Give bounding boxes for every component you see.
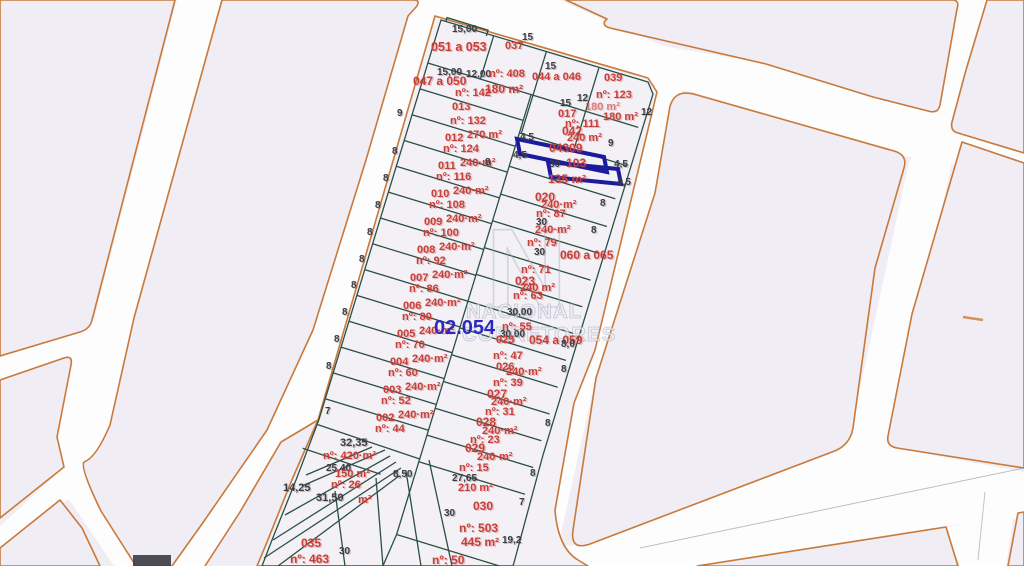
svg-text:nº: 26: nº: 26 [331, 479, 361, 491]
svg-text:240·m²: 240·m² [453, 185, 489, 197]
svg-text:nº: 108: nº: 108 [429, 199, 465, 211]
svg-text:8: 8 [591, 225, 597, 236]
svg-text:240·m²: 240·m² [432, 269, 468, 281]
svg-text:nº: 60: nº: 60 [388, 367, 418, 379]
svg-text:8: 8 [485, 157, 491, 168]
svg-text:8: 8 [367, 227, 373, 238]
svg-text:240·m²: 240·m² [535, 224, 571, 236]
svg-text:30: 30 [534, 247, 546, 258]
svg-text:8: 8 [561, 364, 567, 375]
svg-text:nº: 80: nº: 80 [402, 311, 432, 323]
svg-text:nº: 63: nº: 63 [513, 290, 543, 302]
svg-text:445 m²: 445 m² [461, 535, 499, 549]
svg-text:8: 8 [351, 280, 357, 291]
svg-text:270.m²: 270.m² [467, 129, 502, 141]
svg-text:8: 8 [334, 334, 340, 345]
svg-text:nº: 70: nº: 70 [395, 339, 425, 351]
svg-text:039: 039 [604, 72, 622, 84]
svg-text:8: 8 [600, 198, 606, 209]
svg-text:nº: 124: nº: 124 [443, 143, 480, 155]
svg-text:nº: 420·m²: nº: 420·m² [323, 450, 376, 462]
svg-text:nº: 116: nº: 116 [436, 171, 471, 183]
svg-text:4,5: 4,5 [614, 159, 628, 170]
svg-text:14,25: 14,25 [283, 482, 311, 494]
svg-text:8: 8 [375, 200, 381, 211]
svg-text:nº: 50: nº: 50 [432, 553, 465, 566]
svg-text:037: 037 [505, 40, 523, 52]
svg-text:nº: 123: nº: 123 [596, 89, 632, 101]
svg-text:8,50: 8,50 [393, 469, 413, 480]
svg-text:30,00: 30,00 [507, 307, 532, 318]
svg-text:nº: 132: nº: 132 [450, 115, 486, 127]
svg-text:4,5: 4,5 [520, 132, 534, 143]
svg-text:051 a 053: 051 a 053 [431, 40, 487, 54]
svg-text:nº: 503: nº: 503 [459, 521, 498, 535]
svg-text:240·m²: 240·m² [446, 213, 482, 225]
svg-text:4,5: 4,5 [513, 150, 527, 161]
svg-text:135 m²: 135 m² [548, 172, 586, 186]
svg-text:15: 15 [522, 32, 534, 43]
svg-text:240·m²: 240·m² [405, 381, 441, 393]
svg-text:240·m²: 240·m² [425, 297, 461, 309]
svg-text:9: 9 [397, 108, 403, 119]
svg-text:nº: 86: nº: 86 [409, 283, 439, 295]
svg-text:013: 013 [452, 101, 470, 113]
svg-text:7: 7 [519, 497, 525, 508]
svg-text:30: 30 [339, 546, 351, 557]
svg-text:31,50: 31,50 [316, 492, 344, 504]
svg-text:103: 103 [566, 156, 586, 170]
svg-text:nº: 142: nº: 142 [455, 87, 491, 99]
svg-text:8: 8 [392, 146, 398, 157]
svg-text:nº: 44: nº: 44 [375, 423, 406, 435]
svg-text:240·m²: 240·m² [412, 353, 448, 365]
svg-text:030: 030 [473, 499, 493, 513]
svg-text:047 a 050: 047 a 050 [413, 74, 467, 88]
svg-text:8: 8 [545, 418, 551, 429]
svg-text:8,0: 8,0 [561, 339, 575, 350]
svg-text:180 m²: 180 m² [585, 101, 620, 113]
svg-text:060 a 065: 060 a 065 [560, 248, 614, 262]
svg-text:m²: m² [358, 494, 372, 506]
svg-text:025: 025 [496, 334, 514, 346]
svg-text:210 m²: 210 m² [458, 482, 493, 494]
svg-text:8: 8 [342, 307, 348, 318]
svg-text:9: 9 [608, 138, 614, 149]
svg-text:8: 8 [359, 254, 365, 265]
svg-text:15: 15 [545, 61, 557, 72]
svg-text:30: 30 [444, 508, 456, 519]
svg-text:nº: 52: nº: 52 [381, 395, 411, 407]
svg-text:04309: 04309 [549, 141, 583, 155]
svg-text:035: 035 [301, 536, 321, 550]
svg-text:12: 12 [641, 107, 653, 118]
svg-text:7: 7 [325, 406, 331, 417]
svg-text:02.054: 02.054 [434, 317, 496, 339]
svg-text:19,2: 19,2 [502, 535, 522, 546]
svg-text:4,5: 4,5 [617, 177, 631, 188]
svg-text:nº: 463: nº: 463 [290, 552, 329, 566]
svg-text:15,00: 15,00 [452, 24, 477, 35]
svg-text:30: 30 [549, 159, 561, 170]
svg-text:nº: 408: nº: 408 [489, 68, 525, 80]
svg-text:240·m²: 240·m² [398, 409, 434, 421]
svg-text:nº: 92: nº: 92 [416, 255, 446, 267]
svg-text:044 a 046: 044 a 046 [532, 71, 581, 83]
svg-text:12,00: 12,00 [466, 69, 491, 80]
svg-text:8: 8 [383, 173, 389, 184]
svg-text:32,35: 32,35 [340, 437, 368, 449]
svg-text:nº: 100: nº: 100 [423, 227, 459, 239]
svg-text:240·m²: 240·m² [439, 241, 475, 253]
svg-text:8: 8 [326, 361, 332, 372]
svg-text:8: 8 [530, 468, 536, 479]
